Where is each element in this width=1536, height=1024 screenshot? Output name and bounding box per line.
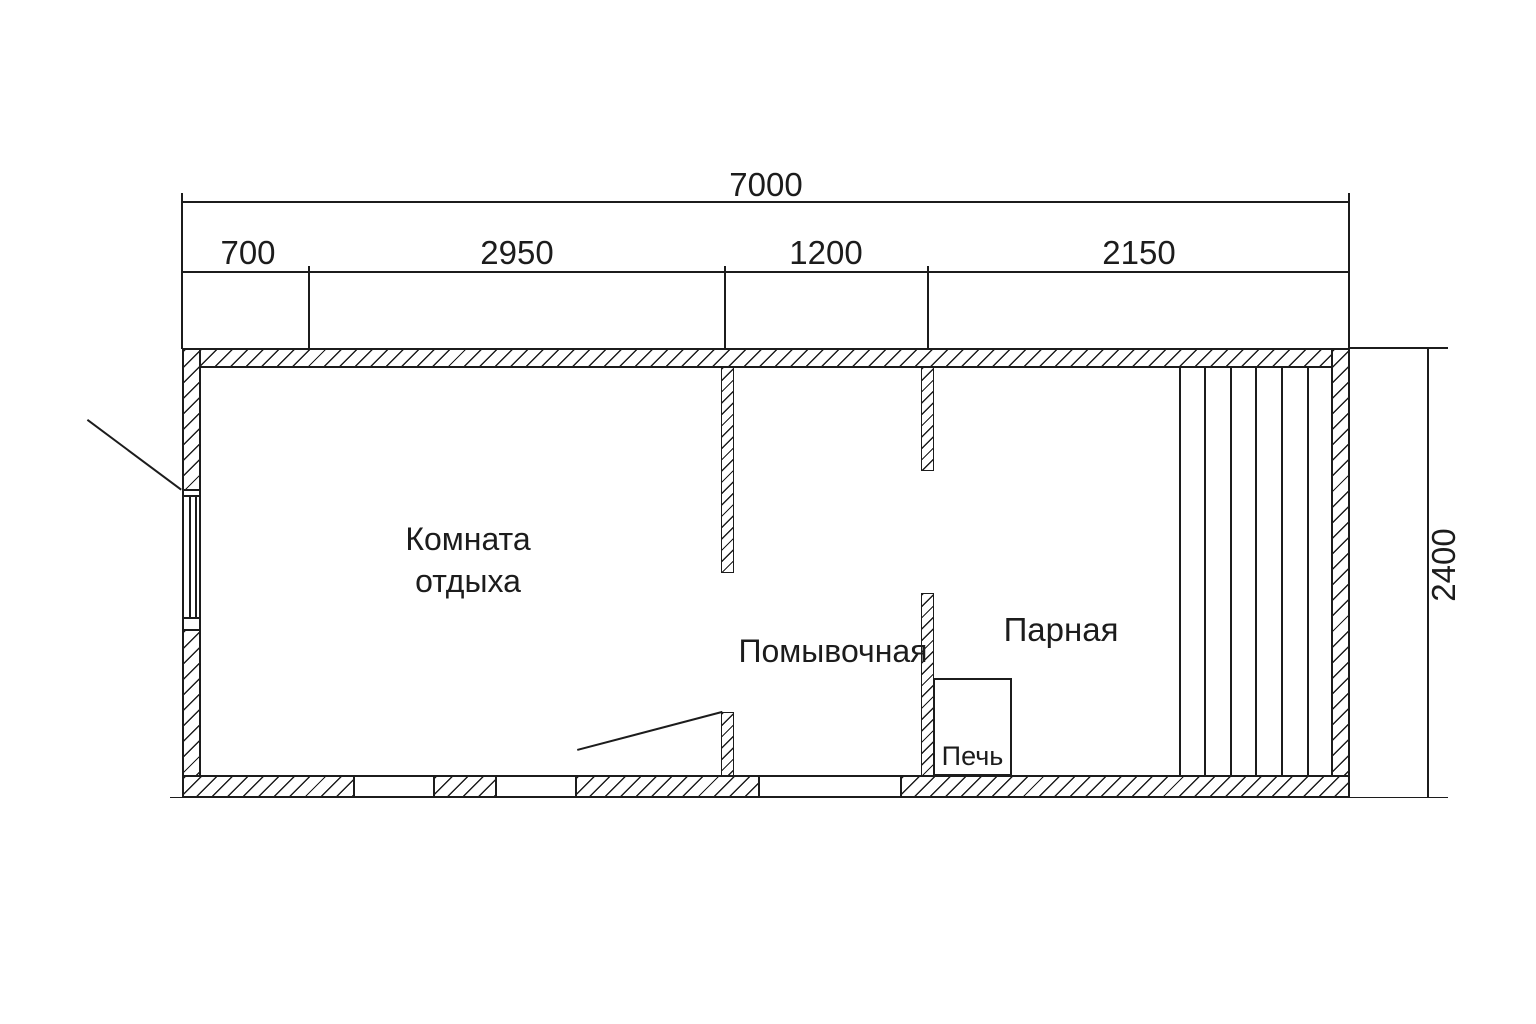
window-left-sash-bottom	[182, 617, 201, 619]
wall-interior-a-lower	[721, 712, 734, 776]
bench-board-line-4	[1255, 367, 1257, 776]
door-a-swing-line	[577, 711, 722, 751]
bench-board-line-1	[1179, 367, 1181, 776]
dim-line-total	[182, 201, 1350, 203]
bench-board-line-3	[1230, 367, 1232, 776]
wall-left-lower	[182, 629, 201, 798]
window-leader-line	[87, 419, 182, 490]
room-label-rest-line1: Комната	[405, 518, 530, 560]
bench-board-line-2	[1204, 367, 1206, 776]
dim-segment-700-label: 700	[220, 234, 275, 272]
bench-board-line-6	[1307, 367, 1309, 776]
room-label-wash: Помывочная	[739, 630, 928, 672]
wall-bottom-seg-2	[433, 775, 497, 798]
wall-interior-a-upper	[721, 367, 734, 573]
dim-segment-2150-label: 2150	[1102, 234, 1175, 272]
extension-line-left	[181, 193, 183, 349]
wall-left-upper	[182, 348, 201, 491]
tick-wall-a-mark	[724, 266, 726, 349]
window-bottom-1	[355, 775, 433, 798]
bench-board-line-5	[1281, 367, 1283, 776]
window-left-glazing-1	[189, 495, 191, 618]
extension-line-top-right	[1350, 347, 1448, 349]
wall-bottom-seg-4	[900, 775, 1350, 798]
room-label-rest-line2: отдыха	[405, 560, 530, 602]
window-left-glazing-2	[195, 495, 197, 618]
wall-bottom-seg-3	[575, 775, 760, 798]
tick-700-mark	[308, 266, 310, 349]
floor-plan-canvas: 7000 700 2950 1200 2150 2400	[0, 0, 1536, 1024]
dim-line-segments	[182, 271, 1350, 273]
room-label-rest: Комната отдыха	[405, 518, 530, 602]
window-bottom-2	[497, 775, 575, 798]
wall-interior-b-upper	[921, 367, 934, 471]
door-entrance-opening	[760, 775, 900, 798]
extension-line-right	[1348, 193, 1350, 349]
window-left-opening	[182, 491, 201, 629]
window-left-sash-top	[182, 495, 201, 497]
room-label-steam: Парная	[1004, 609, 1119, 651]
wall-bottom-seg-1	[182, 775, 355, 798]
wall-top	[182, 348, 1350, 368]
dim-segment-1200-label: 1200	[789, 234, 862, 272]
stove-box: Печь	[933, 678, 1012, 776]
dim-segment-2950-label: 2950	[480, 234, 553, 272]
stove-label: Печь	[942, 741, 1004, 772]
dim-total-width-label: 7000	[729, 166, 802, 204]
dim-height-label: 2400	[1425, 528, 1463, 601]
tick-wall-b-mark	[927, 266, 929, 349]
wall-right	[1331, 348, 1350, 798]
